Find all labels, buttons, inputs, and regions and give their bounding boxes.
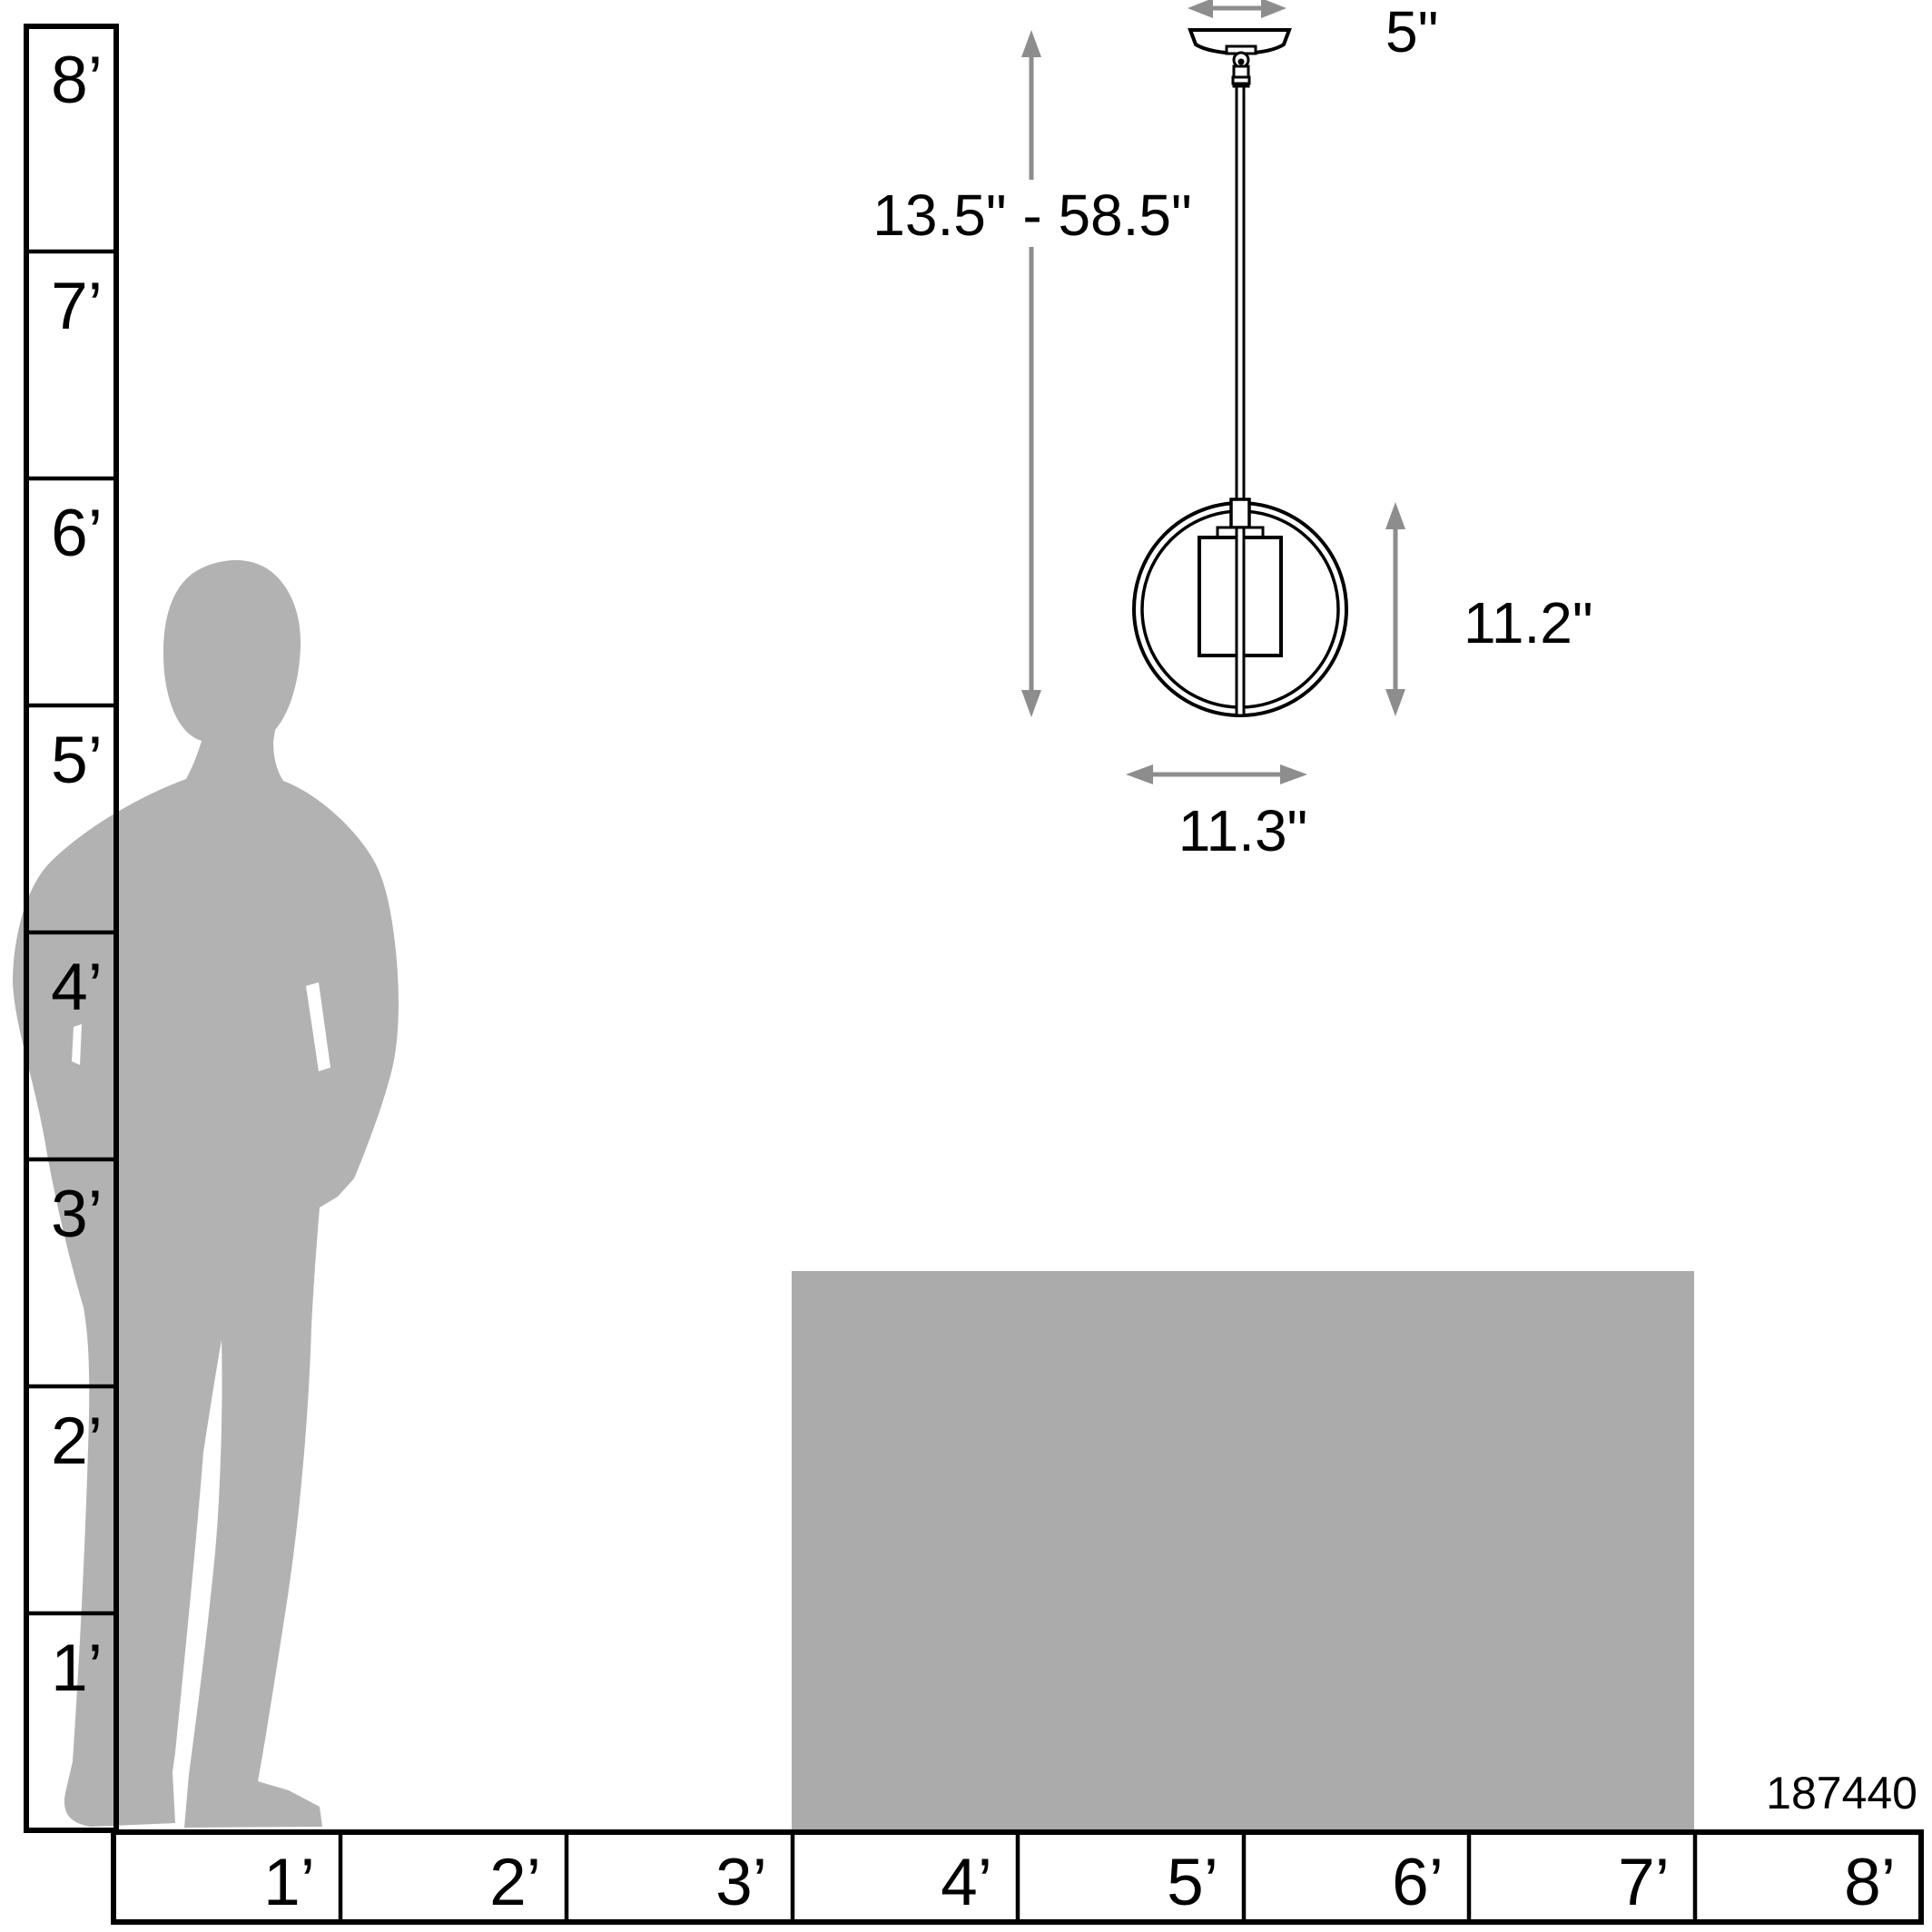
fixture-height-label: 11.2" <box>1464 590 1593 655</box>
arrow-down-head-icon <box>1385 689 1405 716</box>
canopy-width-arrow <box>1188 0 1286 18</box>
fixture-width-arrow <box>1126 764 1307 784</box>
stem-fitting-band <box>1233 77 1249 84</box>
diagram-canvas: 8’ 7’ 6’ 5’ 4’ 3’ 2’ 1’ 1’ 2’ 3’ 4’ 5’ <box>0 0 1932 1932</box>
ruler-tick-label: 7’ <box>1618 1846 1670 1919</box>
ruler-tick-label: 6’ <box>51 497 103 570</box>
ruler-tick-label: 4’ <box>941 1846 992 1919</box>
stem-rod <box>1237 86 1244 499</box>
swivel-ball-dot <box>1238 59 1245 65</box>
ruler-tick-label: 7’ <box>51 270 103 343</box>
ruler-tick-label: 3’ <box>715 1846 767 1919</box>
product-id-label: 187440 <box>1766 1768 1917 1819</box>
arrow-left-head-icon <box>1188 0 1213 18</box>
arrow-right-head-icon <box>1261 0 1286 18</box>
ruler-tick-label: 2’ <box>489 1846 541 1919</box>
hanging-height-range-label: 13.5" - 58.5" <box>872 182 1191 248</box>
ring-top-joint <box>1231 499 1249 527</box>
ruler-tick-label: 2’ <box>51 1405 103 1478</box>
ruler-tick-label: 1’ <box>51 1631 103 1705</box>
ruler-tick-label: 5’ <box>51 724 103 797</box>
table-block <box>792 1271 1694 1830</box>
center-rod <box>1237 527 1244 715</box>
width-ruler: 1’ 2’ 3’ 4’ 5’ 6’ 7’ 8’ <box>113 1832 1921 1922</box>
arrow-right-head-icon <box>1280 764 1307 784</box>
width-ruler-separators <box>340 1832 1695 1922</box>
ruler-tick-label: 1’ <box>263 1846 315 1919</box>
arrow-down-head-icon <box>1021 690 1041 717</box>
hanging-height-arrow <box>1021 30 1041 717</box>
ruler-tick-label: 5’ <box>1167 1846 1218 1919</box>
fixture-width-label: 11.3" <box>1178 798 1308 863</box>
ruler-tick-label: 3’ <box>51 1178 103 1251</box>
fixture-height-arrow <box>1385 502 1405 716</box>
pendant-light-drawing <box>1134 30 1346 715</box>
ruler-tick-label: 4’ <box>51 951 103 1024</box>
ruler-tick-label: 8’ <box>1844 1846 1896 1919</box>
canopy-width-label: 5" <box>1385 0 1438 64</box>
ruler-tick-label: 6’ <box>1392 1846 1444 1919</box>
dimension-diagram: 8’ 7’ 6’ 5’ 4’ 3’ 2’ 1’ 1’ 2’ 3’ 4’ 5’ <box>0 0 1932 1932</box>
width-ruler-labels: 1’ 2’ 3’ 4’ 5’ 6’ 7’ 8’ <box>263 1846 1896 1919</box>
ruler-tick-label: 8’ <box>51 44 103 117</box>
